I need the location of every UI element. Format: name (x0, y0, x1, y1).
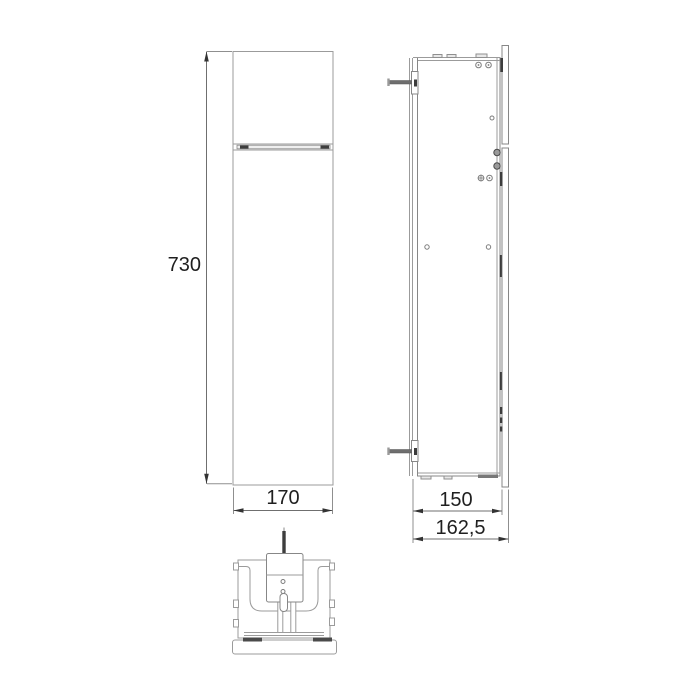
height-dimension-label: 730 (168, 254, 201, 276)
side-tab (330, 563, 335, 570)
side-tab (234, 563, 239, 570)
bottom-view (233, 528, 337, 655)
top-tab (447, 55, 456, 58)
door-edge-mark (500, 427, 502, 432)
bottom-tab (421, 476, 431, 479)
top-tab (433, 55, 442, 58)
bottom-tab (444, 476, 452, 479)
arrowhead-up (204, 52, 209, 62)
hinge-pin (494, 149, 500, 155)
anchor-cap (387, 448, 389, 456)
centre-strut-right (291, 602, 296, 633)
wall-anchor-bottom (387, 441, 418, 462)
lower-door-profile (502, 148, 509, 487)
divider-bar (237, 145, 330, 149)
front-door-divider (233, 144, 333, 150)
anchor-cap (387, 79, 389, 87)
arrowhead-left (413, 537, 423, 541)
width-dimension: 170 (234, 487, 333, 514)
total-depth-dimension-label: 162,5 (435, 517, 485, 539)
arrowhead-left (234, 508, 244, 512)
front-view (233, 52, 333, 486)
side-tab (330, 600, 335, 608)
arrowhead-right (492, 509, 502, 513)
arrowhead-left (413, 509, 423, 513)
divider-hinge-left (240, 146, 249, 149)
arrowhead-right (499, 537, 509, 541)
divider-hinge-right (321, 146, 330, 149)
width-dimension-label: 170 (266, 487, 299, 509)
technical-drawing-page: 730 170 (0, 0, 700, 700)
base-dark-mark-left (243, 638, 262, 642)
arrowhead-down (204, 474, 209, 484)
door-edge-mark (500, 255, 502, 277)
front-cabinet-outline (233, 52, 333, 486)
base-dark-mark-right (313, 638, 332, 642)
door-edge-mark (500, 418, 502, 424)
base-plate (233, 640, 337, 654)
top-tab (476, 54, 487, 58)
door-fixing-mark (501, 58, 504, 72)
height-dimension: 730 (168, 52, 232, 484)
side-tab (234, 620, 239, 628)
wall-anchor-top (387, 72, 418, 95)
centre-slot (280, 594, 288, 612)
door-edge-mark (500, 372, 502, 390)
door-edge-mark (500, 407, 502, 414)
side-tab (330, 618, 335, 626)
depth-dimension-label: 150 (439, 489, 472, 511)
arrowhead-right (323, 508, 333, 512)
hinge-pin (494, 163, 500, 169)
side-tab (234, 600, 239, 608)
lock-mark (500, 172, 503, 186)
side-view (387, 46, 508, 488)
anchor-bar (389, 81, 412, 85)
bottom-dark-mark (478, 475, 498, 479)
anchor-bar (389, 450, 412, 454)
side-body-outline (418, 58, 501, 477)
mounting-pin (282, 531, 285, 555)
technical-drawing: 730 170 (0, 0, 700, 700)
